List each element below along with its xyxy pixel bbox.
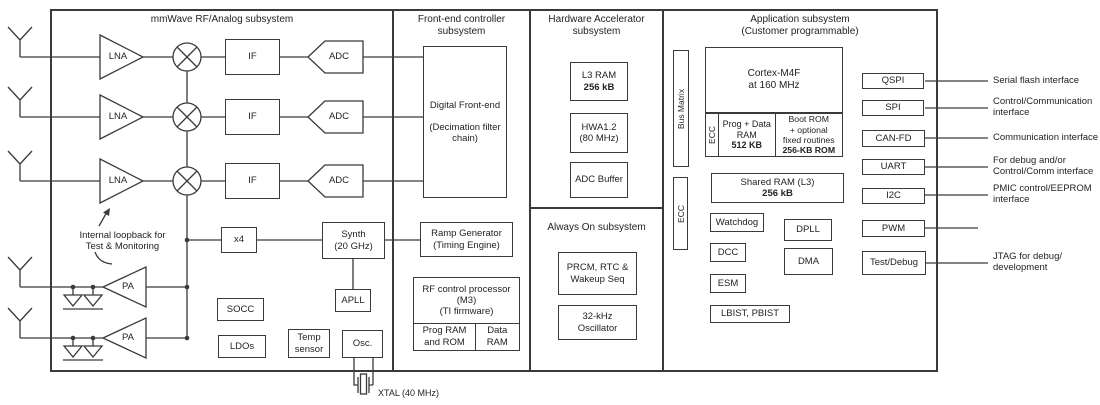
digital-frontend-block: Digital Front-end (Decimation filter cha… xyxy=(423,46,507,198)
lna-label-3: LNA xyxy=(100,175,136,186)
spi-annotation-line2: interface xyxy=(993,108,1100,119)
prcm-block: PRCM, RTC & Wakeup Seq xyxy=(558,252,637,295)
ramp-label1: Ramp Generator xyxy=(431,228,502,239)
ecc-ram-label: ECC xyxy=(707,126,717,144)
tx-chain-2 xyxy=(8,308,187,360)
l3ram-label: L3 RAM xyxy=(582,70,616,81)
tx-antenna-icon xyxy=(8,257,32,287)
hwa-title-line2: subsystem xyxy=(530,26,663,38)
dma-block: DMA xyxy=(784,248,833,275)
dpll-block: DPLL xyxy=(784,219,832,241)
rx-antenna-icon xyxy=(8,151,32,181)
sharedram-size: 256 kB xyxy=(762,188,793,199)
osc-label: Osc. xyxy=(353,338,373,349)
qspi-annotation: Serial flash interface xyxy=(993,76,1100,87)
frontend-title-line1: Front-end controller xyxy=(393,14,530,26)
rfproc-label1: RF control processor xyxy=(422,284,510,295)
adc-label-3: ADC xyxy=(318,175,360,186)
watchdog-block: Watchdog xyxy=(710,213,764,232)
app-title: Application subsystem (Customer programm… xyxy=(663,14,937,38)
tx-chain-1 xyxy=(8,257,187,309)
rx-chain-1 xyxy=(8,27,423,79)
hwa-title: Hardware Accelerator subsystem xyxy=(530,14,663,38)
loopback-note-line1: Internal loopback for xyxy=(70,230,175,241)
if-label: IF xyxy=(248,175,256,186)
watchdog-label: Watchdog xyxy=(716,217,758,228)
power-detector-icon xyxy=(84,295,102,306)
qspi-label: QSPI xyxy=(882,75,905,86)
tx-antenna-icon xyxy=(8,308,32,338)
dataram-label2: RAM xyxy=(487,337,508,348)
ecc-strip-block: ECC xyxy=(673,177,688,250)
adc-buffer-label: ADC Buffer xyxy=(575,174,623,185)
osc-block: Osc. xyxy=(342,330,383,358)
jtag-annotation-line2: development xyxy=(993,263,1100,274)
power-detector-icon xyxy=(64,295,82,306)
bootrom-label1: Boot ROM xyxy=(788,114,829,124)
interface-lines xyxy=(925,81,988,263)
uart-block: UART xyxy=(862,159,925,175)
esm-label: ESM xyxy=(718,278,739,289)
dfe-label: Digital Front-end xyxy=(430,100,500,111)
ldos-block: LDOs xyxy=(218,335,266,358)
uart-annotation: For debug and/or Control/Comm interface xyxy=(993,156,1100,178)
adc-buffer-block: ADC Buffer xyxy=(570,162,628,198)
xtal-icon xyxy=(354,358,373,394)
lbist-label: LBIST, PBIST xyxy=(721,308,779,319)
program-label1: Prog RAM xyxy=(423,325,467,336)
lna-label-2: LNA xyxy=(100,111,136,122)
cortex-label1: Cortex-M4F xyxy=(748,68,801,80)
rx-chain-3 xyxy=(8,151,423,203)
dpll-label: DPLL xyxy=(796,224,820,235)
progdata-size: 512 KB xyxy=(731,140,762,151)
x4-multiplier-block: x4 xyxy=(221,227,257,253)
uart-label: UART xyxy=(881,161,907,172)
mmwave-title: mmWave RF/Analog subsystem xyxy=(51,14,393,26)
bootrom-label2: + optional xyxy=(790,125,828,135)
l3ram-size: 256 kB xyxy=(584,82,615,93)
rx-antenna-icon xyxy=(8,27,32,57)
lbist-pbist-block: LBIST, PBIST xyxy=(710,305,790,323)
loopback-note: Internal loopback for Test & Monitoring xyxy=(70,230,175,253)
i2c-annotation-line2: interface xyxy=(993,195,1100,206)
data-ram-block: Data RAM xyxy=(475,323,521,351)
spi-block: SPI xyxy=(862,100,924,116)
test-debug-block: Test/Debug xyxy=(862,251,926,275)
bootrom-label3: fixed routines xyxy=(783,135,835,145)
if-block-1: IF xyxy=(225,39,280,75)
app-title-line1: Application subsystem xyxy=(663,14,937,26)
prog-data-ram-block: Prog + Data RAM 512 KB xyxy=(718,113,777,157)
progdata-label1: Prog + Data xyxy=(723,119,771,130)
dcc-block: DCC xyxy=(710,243,746,262)
ldos-label: LDOs xyxy=(230,341,254,352)
soc-block-diagram: mmWave RF/Analog subsystem LNA LNA LNA I… xyxy=(0,0,1100,405)
rfproc-label2: (M3) xyxy=(457,295,477,306)
pa-label-1: PA xyxy=(110,281,146,292)
cortex-label2: at 160 MHz xyxy=(748,80,799,92)
osc32k-label1: 32-kHz xyxy=(582,311,612,322)
x4-label: x4 xyxy=(234,234,244,245)
apll-label: APLL xyxy=(341,295,364,306)
ramp-label2: (Timing Engine) xyxy=(433,240,500,251)
i2c-label: I2C xyxy=(886,190,901,201)
prcm-label2: Wakeup Seq xyxy=(570,274,624,285)
if-block-2: IF xyxy=(225,99,280,135)
osc-32k-block: 32-kHz Oscillator xyxy=(558,305,637,340)
if-block-3: IF xyxy=(225,163,280,199)
ramp-generator-block: Ramp Generator (Timing Engine) xyxy=(420,222,513,257)
power-detector-icon xyxy=(84,346,102,357)
bus-matrix-block: Bus Matrix xyxy=(673,50,689,167)
lna-label-1: LNA xyxy=(100,51,136,62)
canfd-annotation: Communication interface xyxy=(993,133,1100,144)
uart-annotation-line2: Control/Comm interface xyxy=(993,167,1100,178)
app-title-line2: (Customer programmable) xyxy=(663,26,937,38)
hwa12-block: HWA1.2 (80 MHz) xyxy=(570,113,628,153)
hwa12-label: HWA1.2 xyxy=(581,122,616,133)
synth-block: Synth (20 GHz) xyxy=(322,222,385,259)
synth-label: Synth xyxy=(341,229,365,240)
prog-ram-rom-block: Prog RAM and ROM xyxy=(413,323,476,351)
prcm-label1: PRCM, RTC & xyxy=(567,262,629,273)
spi-label: SPI xyxy=(885,102,900,113)
dfe-sub2: chain) xyxy=(452,133,478,144)
bootrom-size: 256-KB ROM xyxy=(782,145,835,155)
dfe-sub1: (Decimation filter xyxy=(429,122,500,133)
power-detector-icon xyxy=(64,346,82,357)
hwa-title-line1: Hardware Accelerator xyxy=(530,14,663,26)
esm-block: ESM xyxy=(710,274,746,293)
program-label2: and ROM xyxy=(424,337,465,348)
apll-block: APLL xyxy=(335,289,371,312)
alwayson-title: Always On subsystem xyxy=(530,222,663,234)
ecc-strip-label: ECC xyxy=(676,205,686,223)
progdata-label2: RAM xyxy=(737,130,757,141)
bus-matrix-label: Bus Matrix xyxy=(676,88,686,128)
loopback-note-line2: Test & Monitoring xyxy=(70,241,175,252)
diagram-wires xyxy=(0,0,1100,405)
canfd-block: CAN-FD xyxy=(862,130,925,147)
temp-label2: sensor xyxy=(295,344,324,355)
synth-freq: (20 GHz) xyxy=(334,241,373,252)
boot-rom-block: Boot ROM + optional fixed routines 256-K… xyxy=(775,113,844,157)
if-label: IF xyxy=(248,51,256,62)
i2c-annotation: PMIC control/EEPROM interface xyxy=(993,184,1100,206)
socc-label: SOCC xyxy=(227,304,254,315)
rfproc-label3: (TI firmware) xyxy=(440,306,494,317)
rf-control-processor-block: RF control processor (M3) (TI firmware) xyxy=(413,277,520,324)
pa-label-2: PA xyxy=(110,332,146,343)
cortex-m4f-block: Cortex-M4F at 160 MHz xyxy=(705,47,843,113)
dma-label: DMA xyxy=(798,256,819,267)
adc-label-1: ADC xyxy=(318,51,360,62)
hwa12-freq: (80 MHz) xyxy=(579,133,618,144)
frontend-title: Front-end controller subsystem xyxy=(393,14,530,38)
dataram-label1: Data xyxy=(487,325,507,336)
rx-antenna-icon xyxy=(8,87,32,117)
temp-label1: Temp xyxy=(297,332,320,343)
testdebug-label: Test/Debug xyxy=(870,257,918,268)
i2c-block: I2C xyxy=(862,188,925,204)
qspi-block: QSPI xyxy=(862,73,924,89)
osc32k-label2: Oscillator xyxy=(578,323,618,334)
spi-annotation: Control/Communication interface xyxy=(993,97,1100,119)
if-label: IF xyxy=(248,111,256,122)
jtag-annotation: JTAG for debug/ development xyxy=(993,252,1100,274)
socc-block: SOCC xyxy=(217,298,264,321)
temp-sensor-block: Temp sensor xyxy=(288,329,330,358)
rx-chain-2 xyxy=(8,87,423,139)
shared-ram-block: Shared RAM (L3) 256 kB xyxy=(711,173,844,203)
frontend-title-line2: subsystem xyxy=(393,26,530,38)
sharedram-label: Shared RAM (L3) xyxy=(741,177,815,188)
xtal-label: XTAL (40 MHz) xyxy=(378,388,458,398)
pwm-block: PWM xyxy=(862,220,925,237)
dcc-label: DCC xyxy=(718,247,739,258)
canfd-label: CAN-FD xyxy=(876,133,912,144)
adc-label-2: ADC xyxy=(318,111,360,122)
pwm-label: PWM xyxy=(882,223,905,234)
l3-ram-block: L3 RAM 256 kB xyxy=(570,62,628,101)
